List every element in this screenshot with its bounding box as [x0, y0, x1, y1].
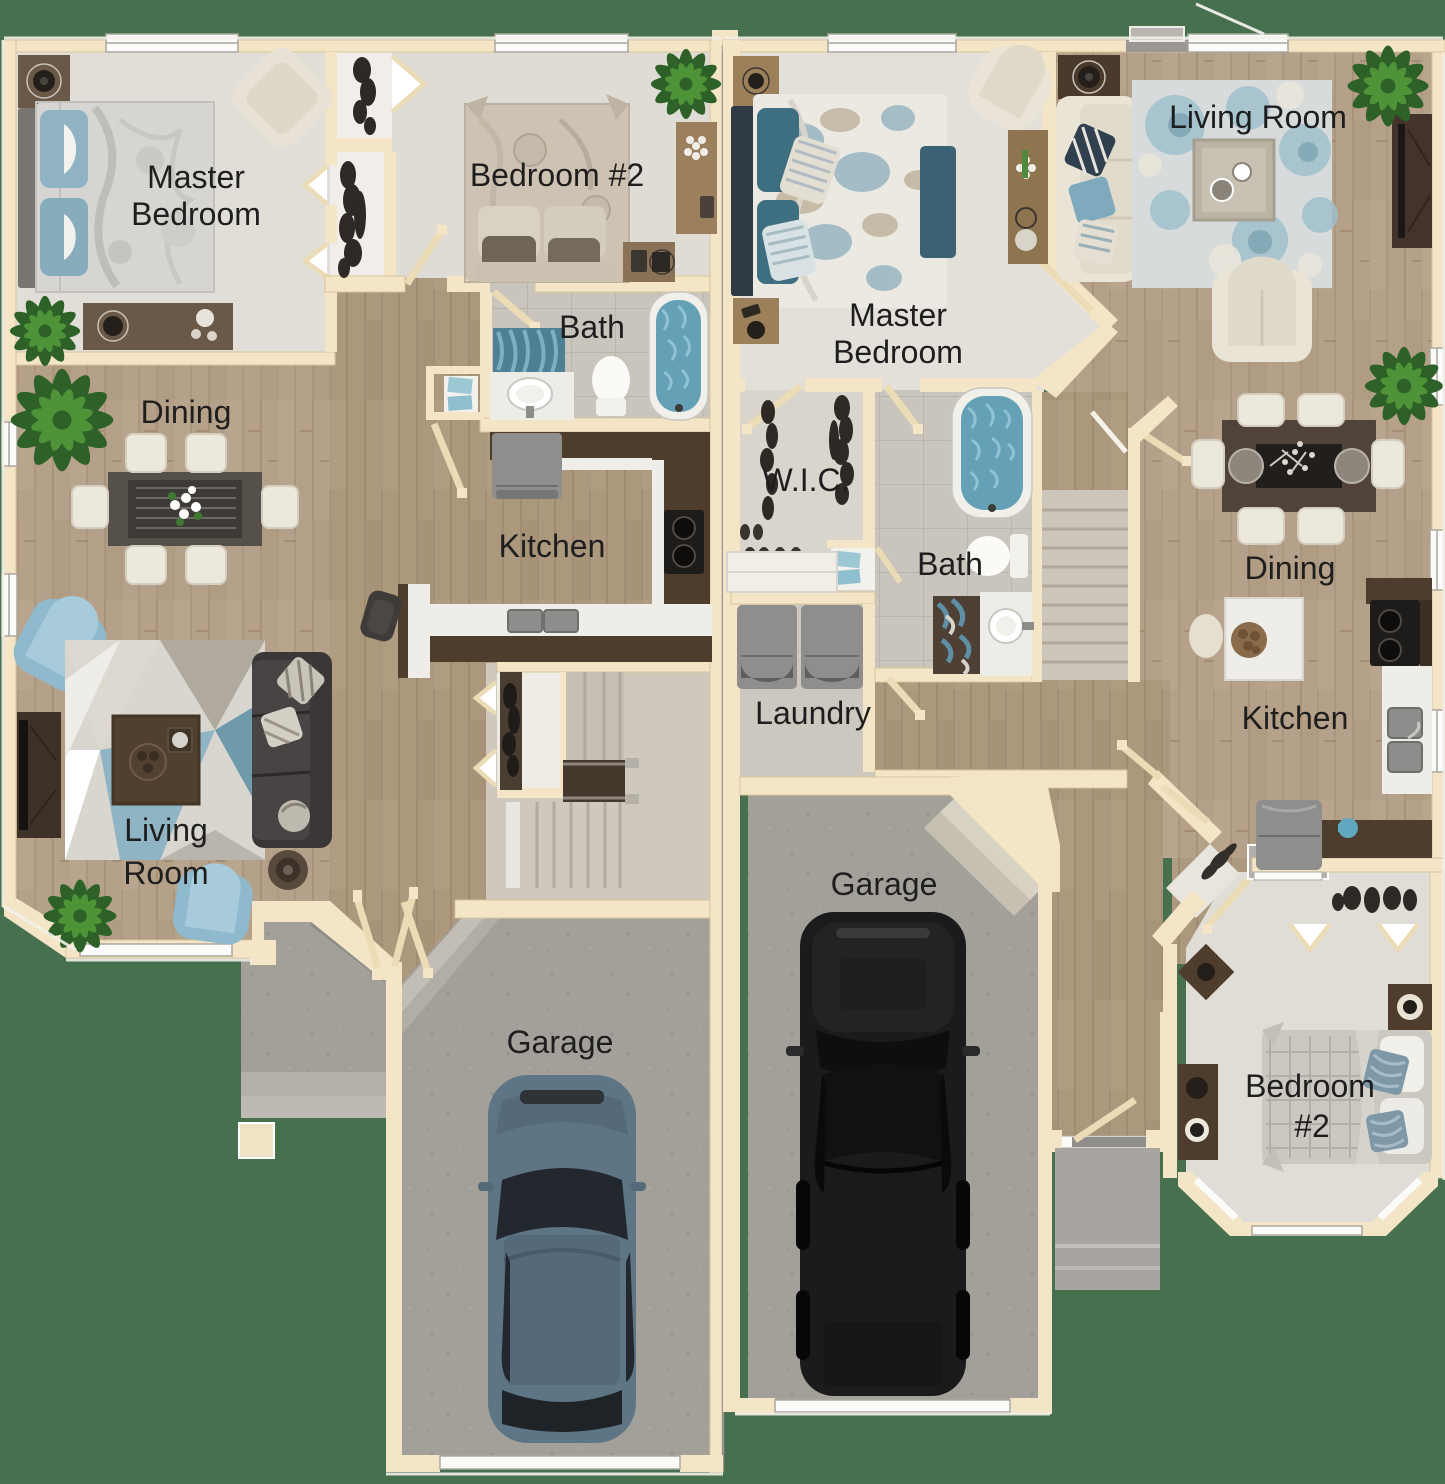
svg-text:Bath: Bath [917, 546, 983, 582]
svg-text:Bedroom: Bedroom [131, 196, 261, 232]
svg-text:Living: Living [124, 812, 208, 848]
svg-text:#2: #2 [1294, 1108, 1330, 1144]
svg-text:Bedroom: Bedroom [833, 334, 963, 370]
svg-text:Living Room: Living Room [1169, 99, 1347, 135]
svg-text:Master: Master [147, 159, 245, 195]
svg-text:Bath: Bath [559, 309, 625, 345]
svg-text:W.I.C.: W.I.C. [762, 462, 849, 498]
svg-text:Bedroom #2: Bedroom #2 [470, 157, 644, 193]
svg-text:Laundry: Laundry [755, 695, 871, 731]
svg-text:Master: Master [849, 297, 947, 333]
svg-text:Room: Room [123, 855, 208, 891]
svg-text:Dining: Dining [141, 394, 232, 430]
svg-text:Kitchen: Kitchen [1242, 700, 1349, 736]
svg-text:Garage: Garage [507, 1024, 614, 1060]
svg-text:Garage: Garage [831, 866, 938, 902]
svg-text:Bedroom: Bedroom [1245, 1068, 1375, 1104]
svg-text:Kitchen: Kitchen [499, 528, 606, 564]
svg-text:Dining: Dining [1245, 550, 1336, 586]
